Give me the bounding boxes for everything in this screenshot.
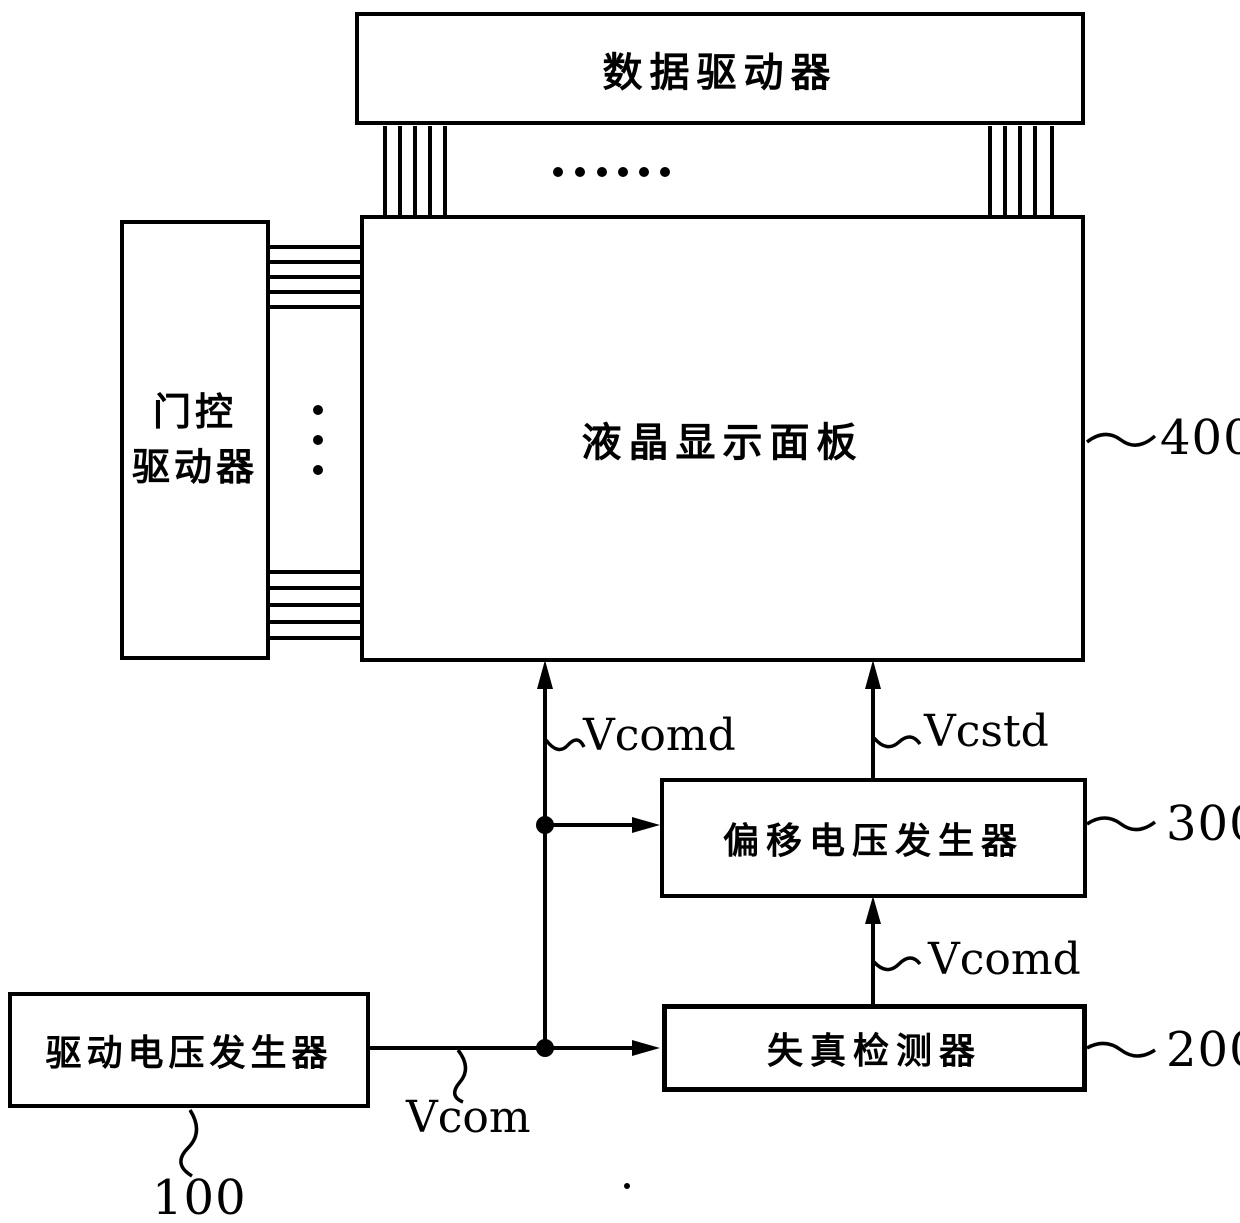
arrowhead-right-into-detector (632, 1040, 660, 1056)
lcd-panel-label: 液晶显示面板 (582, 410, 864, 468)
offset-voltage-generator-box: 偏移电压发生器 (660, 778, 1087, 898)
vcomd-panel-label: Vcomd (583, 714, 736, 758)
arrowhead-up-vcomd-panel (537, 660, 553, 689)
lcd-panel-box: 液晶显示面板 (360, 215, 1085, 662)
offset-voltage-generator-label: 偏移电压发生器 (723, 812, 1024, 864)
data-bus-lines-left (385, 126, 445, 216)
gate-bus-lines-bottom (268, 572, 362, 638)
vertical-ellipsis-dots (313, 405, 323, 475)
gate-bus-lines-top (268, 247, 362, 307)
arrowhead-right-into-offset (632, 817, 660, 833)
leader-200 (1087, 1043, 1155, 1056)
ref-100: 100 (152, 1174, 247, 1222)
driving-voltage-generator-label: 驱动电压发生器 (45, 1024, 332, 1076)
vcomd-offset-label: Vcomd (928, 938, 1081, 982)
leader-vcomd-offset (874, 958, 920, 970)
gate-driver-box: 门控 驱动器 (120, 220, 270, 660)
data-driver-box: 数据驱动器 (355, 12, 1085, 125)
data-driver-label: 数据驱动器 (603, 40, 838, 98)
distortion-detector-box: 失真检测器 (662, 1004, 1087, 1092)
arrowhead-up-vcomd-offset (865, 896, 881, 924)
data-bus-lines-right (990, 126, 1052, 216)
ref-200: 200 (1166, 1026, 1240, 1074)
driving-voltage-generator-box: 驱动电压发生器 (8, 992, 370, 1108)
leader-vcomd-panel (546, 740, 584, 750)
vcstd-label: Vcstd (924, 710, 1049, 754)
patent-block-diagram: 数据驱动器 门控 驱动器 液晶显示面板 偏移电压发生器 失真检测器 驱动电压发生… (0, 0, 1240, 1223)
gate-driver-label: 门控 驱动器 (132, 385, 258, 495)
distortion-detector-label: 失真检测器 (767, 1022, 982, 1074)
arrowhead-up-vcstd-panel (865, 660, 881, 689)
leader-100 (181, 1110, 197, 1176)
junction-dot-upper (536, 816, 554, 834)
vcom-label: Vcom (406, 1096, 531, 1140)
ref-300: 300 (1166, 800, 1240, 848)
leader-vcstd (874, 737, 920, 747)
leader-300 (1087, 818, 1155, 830)
ref-400: 400 (1160, 414, 1240, 462)
leader-400 (1087, 434, 1155, 445)
junction-dot-lower (536, 1039, 554, 1057)
horizontal-ellipsis-dots (553, 167, 670, 177)
scan-speck (624, 1183, 630, 1189)
